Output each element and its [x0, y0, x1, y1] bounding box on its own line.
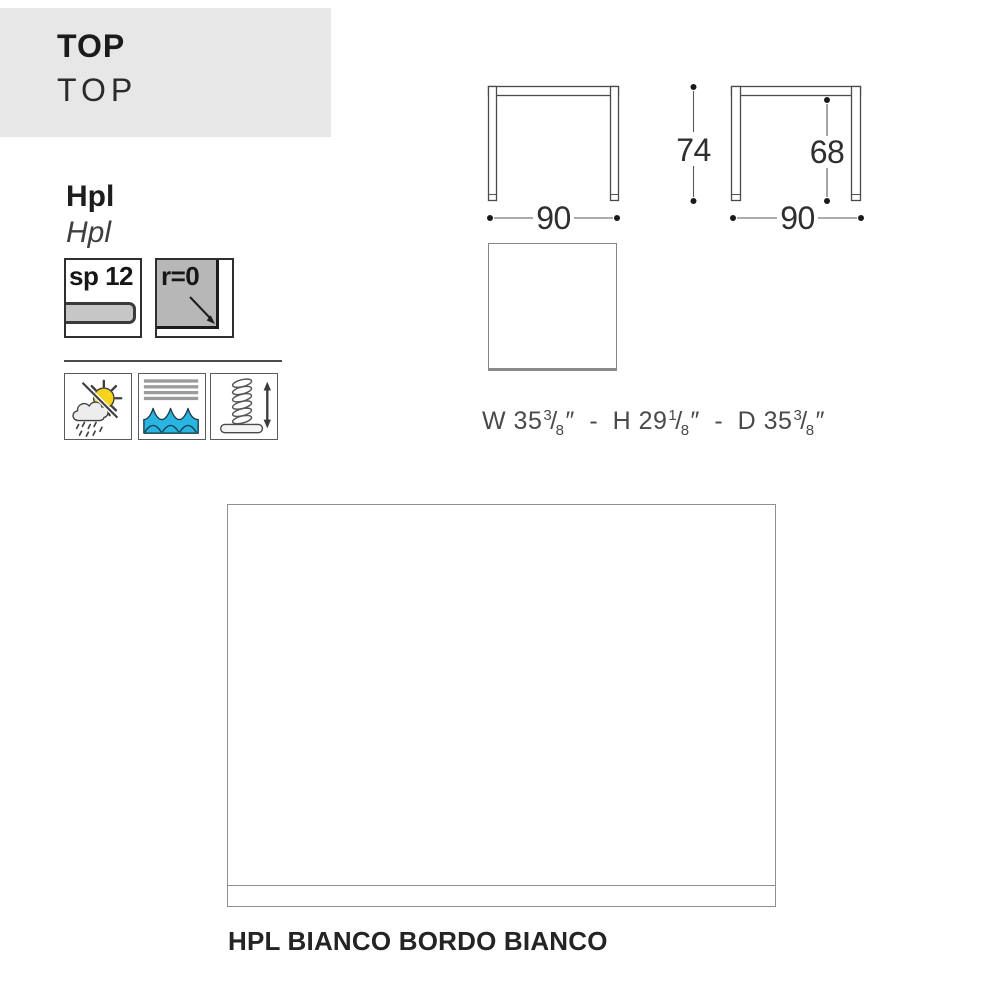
width-imperial: W 353/8″	[482, 407, 575, 435]
dim-front-width-value: 90	[536, 200, 571, 236]
depth-imperial: D 353/8″	[738, 407, 825, 435]
feature-water-resistant	[138, 373, 206, 440]
dim-separator: -	[714, 407, 723, 435]
table-top-view	[488, 243, 617, 371]
corner-arrow-icon	[157, 260, 232, 336]
spec-sheet-page: TOP TOP Hpl Hpl sp 12 r=0	[0, 0, 1000, 1000]
swatch-edge-strip	[228, 885, 775, 906]
dim-side-clearance-value: 68	[810, 134, 845, 170]
height-arrow-icon	[264, 382, 271, 429]
thickness-label: sp 12	[69, 261, 133, 292]
material-name: Hpl	[66, 180, 114, 214]
imperial-dimensions: W 353/8″ - H 291/8″ - D 353/8″	[482, 407, 825, 439]
page-title: TOP	[57, 28, 125, 65]
dim-front-height: 74	[676, 84, 711, 204]
table-front-view	[489, 87, 619, 201]
page-subtitle: TOP	[57, 72, 137, 109]
thickness-spec-box: sp 12	[64, 258, 142, 338]
finish-caption: HPL BIANCO BORDO BIANCO	[228, 926, 608, 957]
height-imperial: H 291/8″	[613, 407, 700, 435]
header-band: TOP TOP	[0, 8, 331, 137]
material-name-translated: Hpl	[66, 216, 111, 250]
finish-swatch	[227, 504, 776, 907]
technical-drawing: 90 74 68 90	[460, 70, 880, 240]
dim-front-width: 90	[487, 200, 620, 236]
dim-side-width: 90	[730, 200, 864, 236]
dim-side-width-value: 90	[780, 200, 815, 236]
adjustable-foot-icon	[211, 374, 277, 439]
dim-separator: -	[589, 407, 598, 435]
feature-adjustable-feet	[210, 373, 278, 440]
sun-cloud-rain-icon	[65, 374, 131, 439]
radius-spec-box: r=0	[155, 258, 234, 338]
dim-side-clearance: 68	[810, 97, 845, 204]
waves-icon	[139, 374, 205, 439]
feature-weatherproof	[64, 373, 132, 440]
divider-line	[64, 360, 282, 362]
panel-thickness-icon	[66, 302, 136, 324]
dim-front-height-value: 74	[676, 132, 711, 168]
